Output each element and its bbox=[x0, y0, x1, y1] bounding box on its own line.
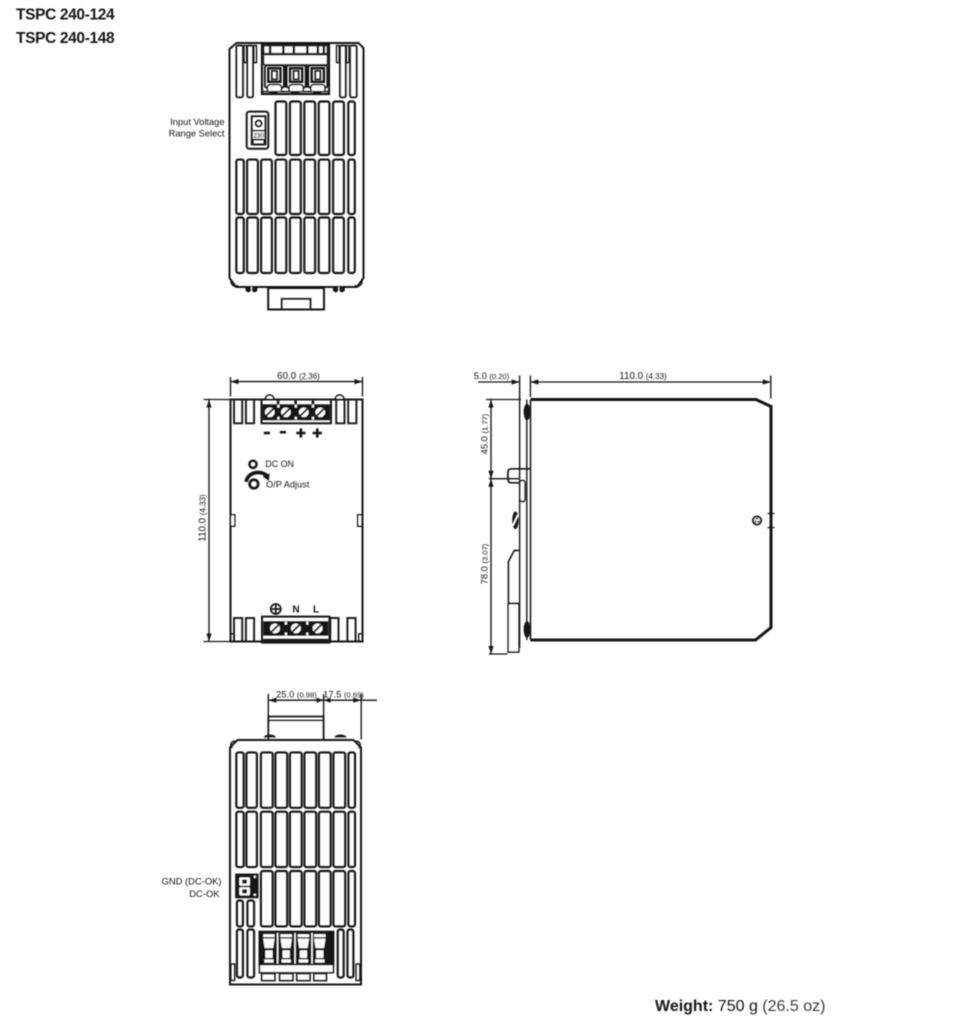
svg-text:Input Voltage: Input Voltage bbox=[170, 117, 224, 127]
svg-text:DC ON: DC ON bbox=[265, 459, 294, 469]
svg-text:230: 230 bbox=[253, 133, 264, 140]
svg-text:N: N bbox=[292, 605, 299, 616]
svg-text:60.0 (2.36): 60.0 (2.36) bbox=[277, 371, 320, 382]
svg-text:110.0 (4.33): 110.0 (4.33) bbox=[619, 371, 667, 382]
svg-text:TSPC 240-124: TSPC 240-124 bbox=[16, 7, 115, 24]
svg-text:Weight: 750 g (26.5 oz): Weight: 750 g (26.5 oz) bbox=[655, 998, 825, 1015]
svg-text:5.0 (0.20): 5.0 (0.20) bbox=[474, 370, 510, 381]
svg-text:25.0 (0.98): 25.0 (0.98) bbox=[276, 689, 317, 700]
svg-text:Range Select: Range Select bbox=[169, 129, 225, 139]
svg-text:GND (DC-OK): GND (DC-OK) bbox=[162, 876, 222, 887]
svg-text:DC-OK: DC-OK bbox=[189, 888, 220, 899]
svg-text:78.0 (3.07): 78.0 (3.07) bbox=[479, 543, 490, 584]
svg-text:L: L bbox=[313, 605, 319, 616]
svg-text:TSPC 240-148: TSPC 240-148 bbox=[16, 30, 115, 47]
svg-text:O/P Adjust: O/P Adjust bbox=[266, 479, 310, 489]
svg-text:110.0 (4.33): 110.0 (4.33) bbox=[198, 494, 209, 542]
svg-text:17.5 (0.69): 17.5 (0.69) bbox=[323, 689, 364, 700]
svg-text:45.0 (1.77): 45.0 (1.77) bbox=[479, 413, 490, 454]
